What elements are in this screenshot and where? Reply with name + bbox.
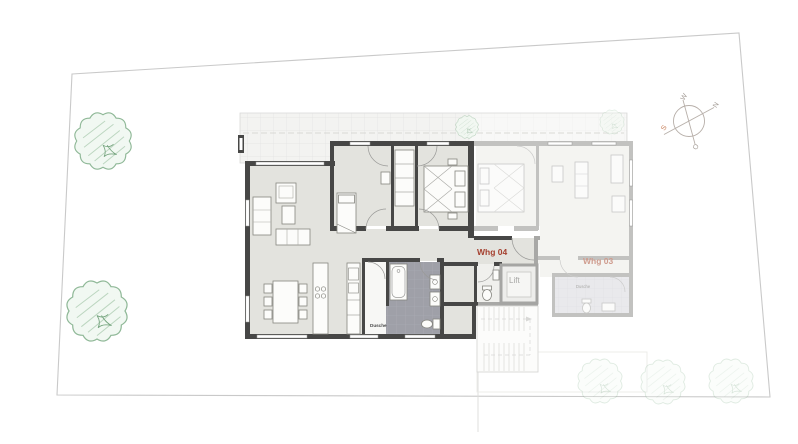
dining-table <box>264 281 307 323</box>
bathroom-sink-2 <box>430 292 440 306</box>
table-whg03 <box>611 155 623 183</box>
sink-whg03 <box>602 303 615 311</box>
compass-west-label: W <box>680 92 690 102</box>
tree-icon <box>67 281 127 341</box>
tree-icon <box>709 359 753 403</box>
double-bed <box>424 159 468 219</box>
tree-icon <box>600 110 624 134</box>
bathroom-sink-1 <box>430 275 440 289</box>
kitchen-island <box>313 263 328 334</box>
toilet-whg03 <box>582 299 591 313</box>
stairs <box>477 306 538 372</box>
coffee-table <box>282 206 295 224</box>
tree-icon <box>641 360 685 404</box>
whg04-label: Whg 04 <box>477 247 507 257</box>
shelf-bedroom-1 <box>381 172 390 184</box>
compass-icon: W N S O <box>660 92 721 151</box>
chaise-sofa <box>253 197 271 235</box>
hallway-floor <box>332 229 474 261</box>
armchair <box>276 183 296 203</box>
wc-sink <box>493 270 499 280</box>
tree-icon <box>456 116 479 139</box>
whg03-label: Whg 03 <box>583 256 613 266</box>
shower-whg04-label: Dusche <box>370 323 387 328</box>
double-bed-whg03 <box>478 164 524 212</box>
chair-whg03 <box>612 196 625 212</box>
shower-whg03-label: Dusche <box>576 284 591 289</box>
armchair-whg03 <box>552 166 563 182</box>
wardrobe <box>395 150 414 206</box>
tree-icon <box>75 113 131 169</box>
wc-toilet <box>483 286 492 301</box>
sofa <box>276 229 310 245</box>
sofa-whg03 <box>575 162 588 198</box>
bathtub <box>390 264 407 300</box>
compass-east-label: O <box>692 143 701 152</box>
kitchen-cabinets <box>347 263 360 334</box>
lift-label: Lift <box>509 276 520 285</box>
compass-south-label: S <box>660 124 669 132</box>
site-plan: W N S O Whg 04 Whg 03 Lift Dusche Dusche <box>0 0 798 444</box>
tree-icon <box>578 359 622 403</box>
single-bed <box>337 193 356 233</box>
floor-plan-drawing: W N S O Whg 04 Whg 03 Lift Dusche Dusche <box>0 0 798 444</box>
